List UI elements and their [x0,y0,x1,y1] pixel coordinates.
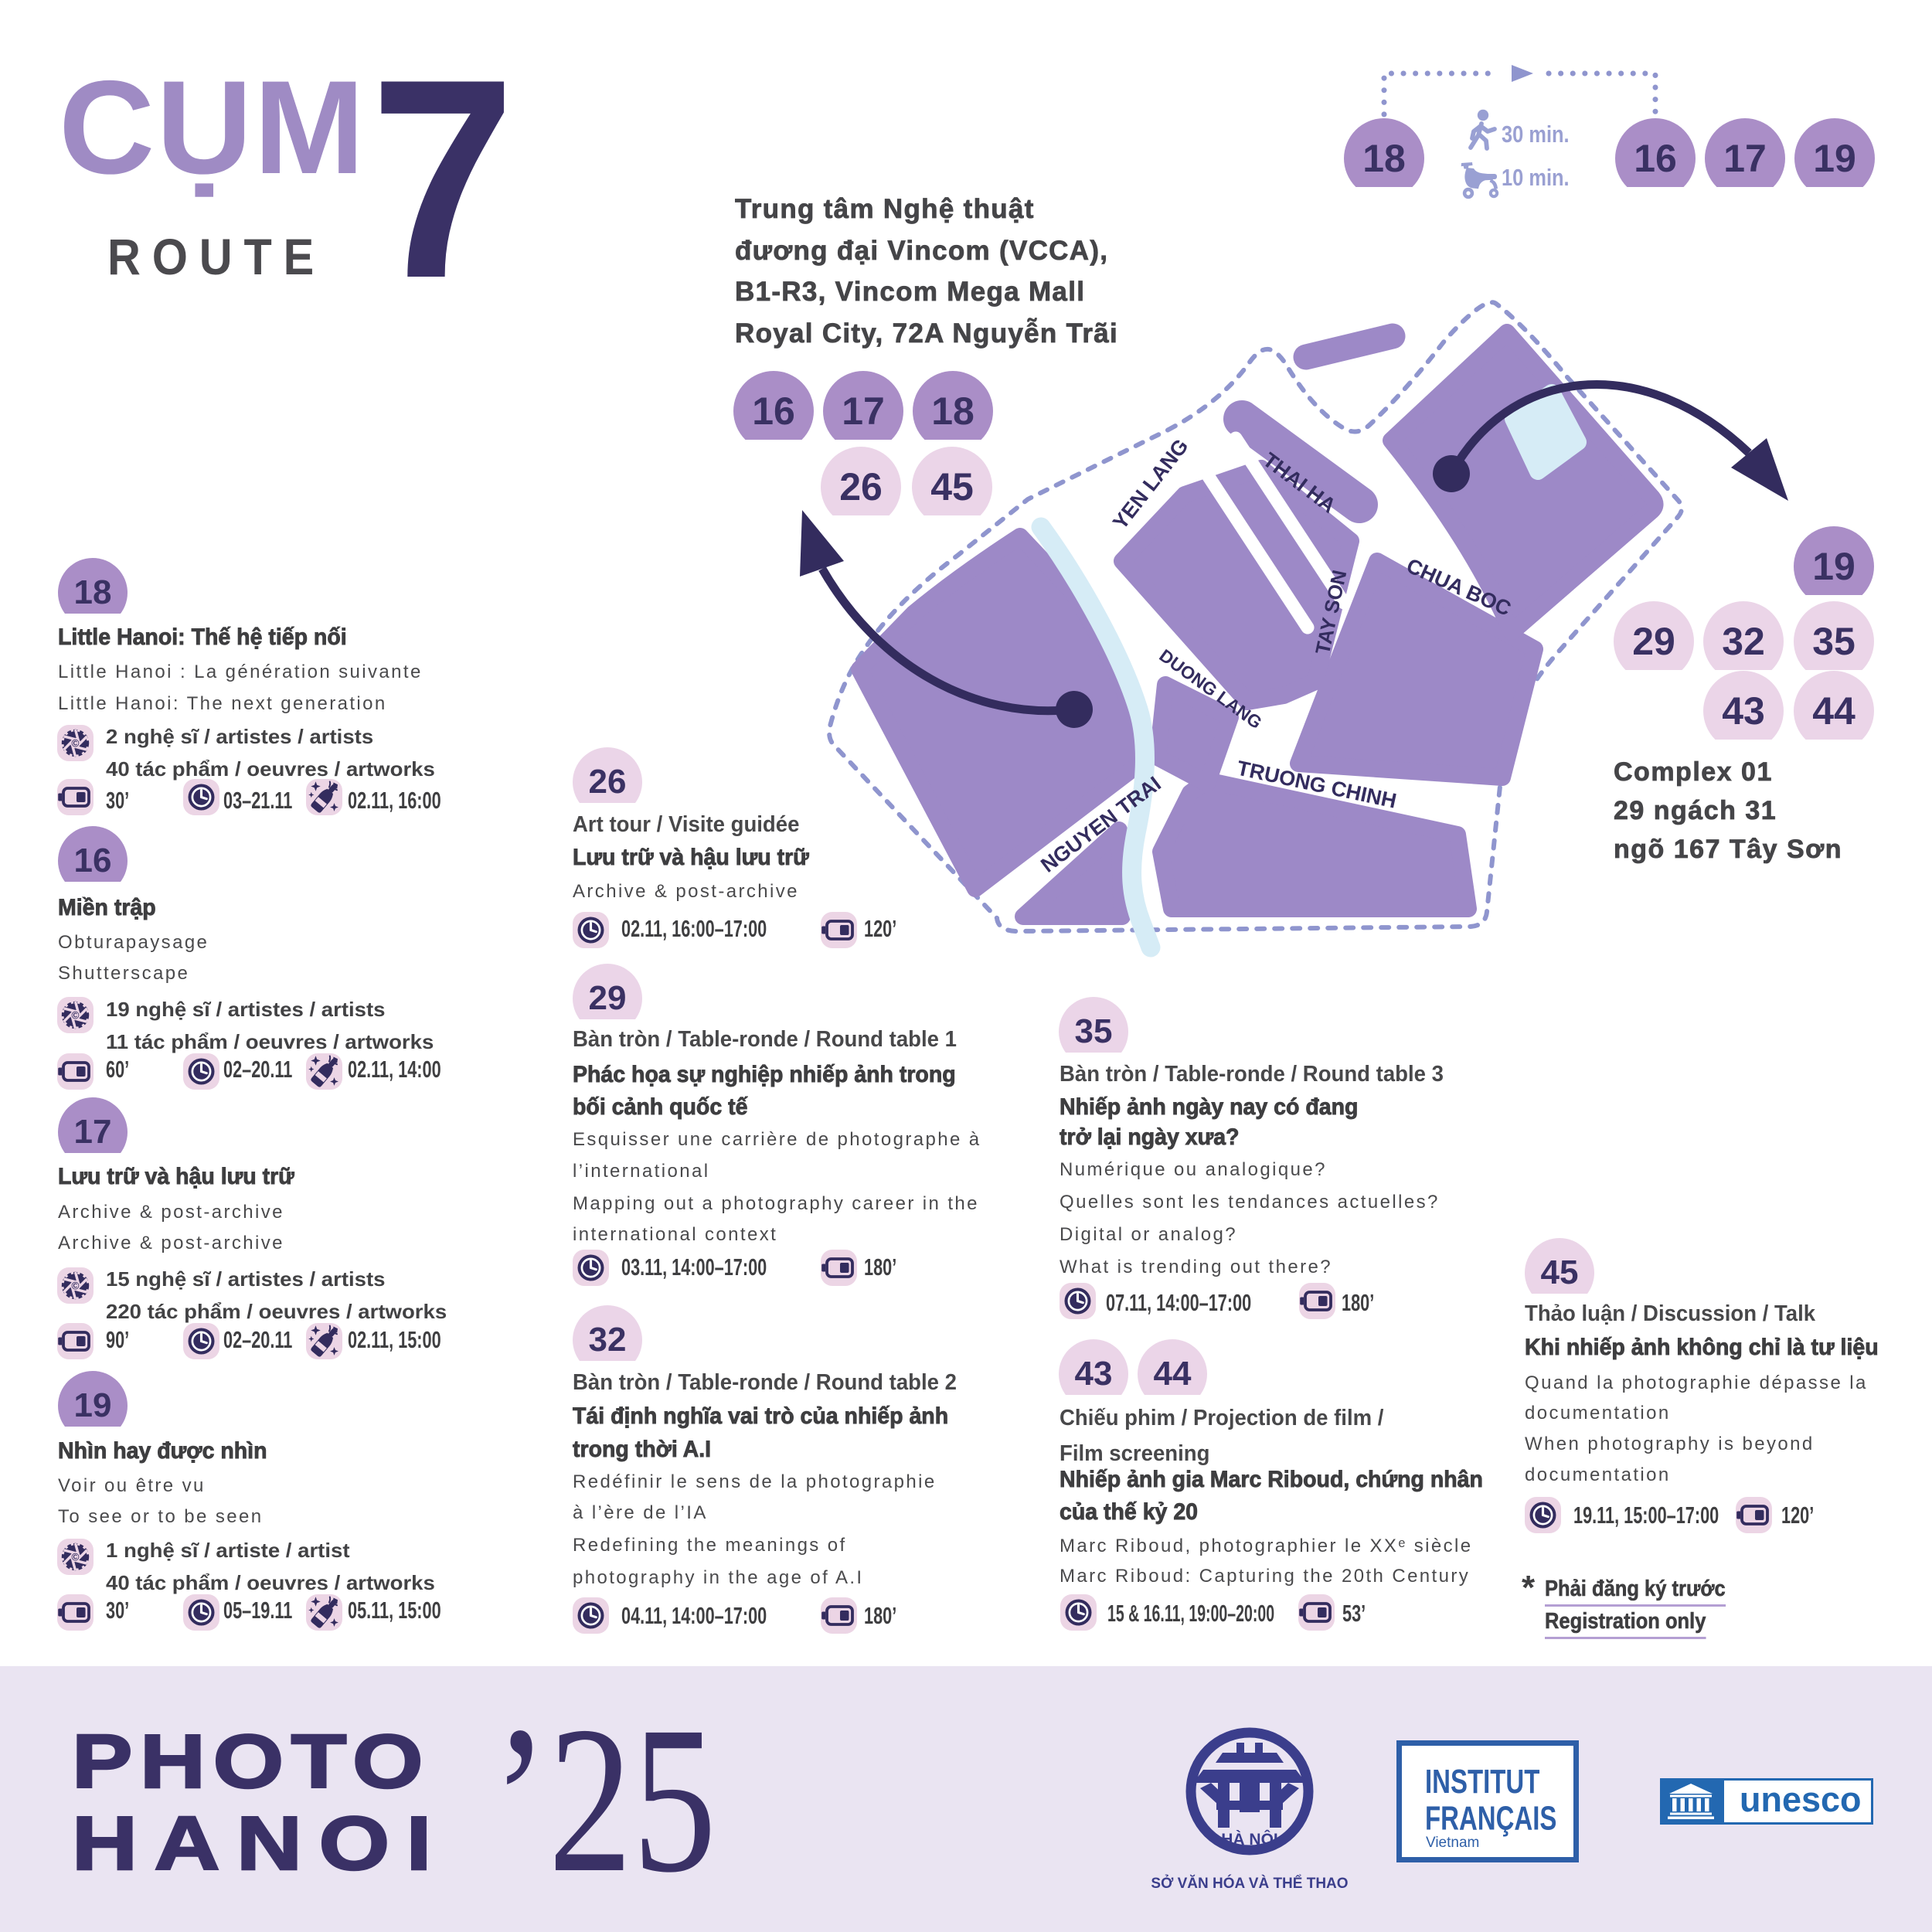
svg-text:©: © [72,1281,80,1292]
svg-text:SỞ VĂN HÓA VÀ THỂ THAO: SỞ VĂN HÓA VÀ THỂ THAO [1151,1875,1348,1892]
svg-text:©: © [72,1552,80,1563]
svg-text:HÀ NỘI: HÀ NỘI [1221,1830,1278,1849]
svg-text:©: © [72,738,80,750]
svg-text:©: © [72,1010,80,1022]
